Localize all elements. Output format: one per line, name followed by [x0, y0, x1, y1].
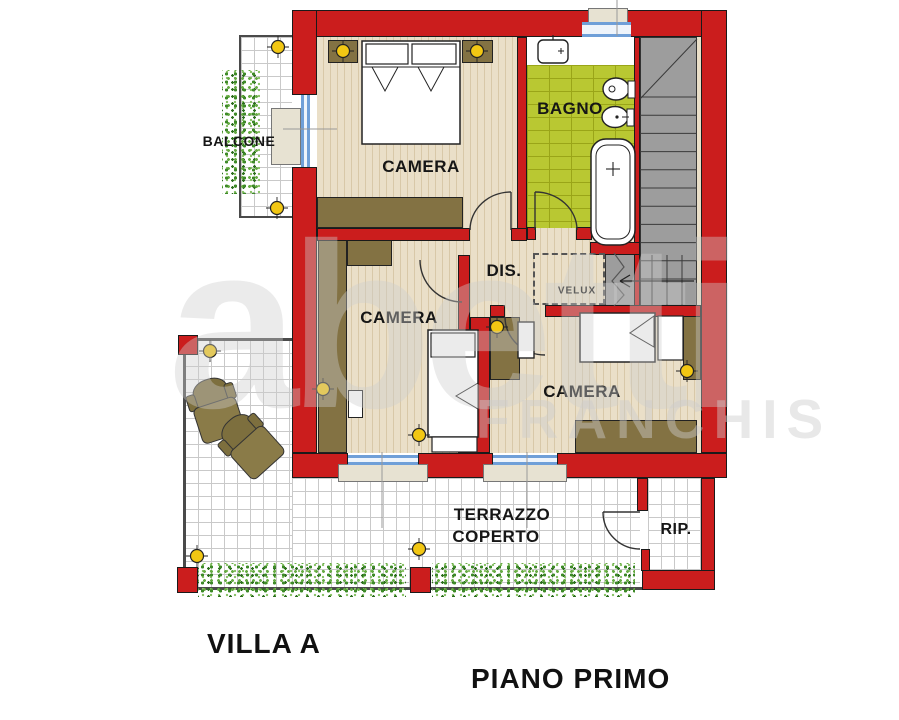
terrace-pillar-bottom-mid [410, 567, 431, 593]
wall-camera-bottom-left [470, 317, 490, 453]
label-dis: DIS. [486, 261, 521, 281]
wall-camera-top-stub [511, 228, 527, 241]
wardrobe-camera-top [317, 197, 463, 228]
terrace-border-top [183, 338, 292, 341]
wall-left-lower [292, 167, 317, 453]
wardrobe-camera-middle-vertical [318, 240, 347, 453]
wall-camera-bottom-top-b [545, 305, 701, 317]
bathroom-window-box [588, 8, 628, 23]
terrace-plants-right [432, 563, 635, 597]
wall-camera-top-bottom [317, 228, 470, 241]
balcony-door-glass [301, 95, 310, 167]
nightstand-right [462, 40, 493, 63]
label-bagno: BAGNO [537, 99, 603, 119]
balcony-plant [222, 70, 260, 194]
wall-right [701, 10, 727, 453]
wall-bagno-bottom-left [527, 227, 536, 240]
window-sill-camera-middle [338, 464, 428, 482]
terrace-border-left [183, 338, 186, 590]
label-velux: VELUX [558, 286, 596, 297]
balcony-door-threshold [271, 108, 301, 165]
wall-bottom-b [418, 453, 493, 478]
wardrobe-camera-bottom-left [490, 317, 520, 380]
label-terrazzo-line1: TERRAZZO [454, 505, 551, 525]
shelf-camera-middle [348, 390, 363, 418]
wall-left-upper [292, 10, 317, 95]
window-camera-bottom [493, 455, 557, 465]
terrace-pillar-bottom-left [177, 567, 198, 593]
terrace-plants-left [198, 563, 406, 597]
staircase [640, 37, 697, 306]
wall-rip-left-stub [641, 549, 650, 571]
wardrobe-camera-middle-top [347, 240, 392, 266]
nightstand-left [328, 40, 358, 63]
label-camera-top: CAMERA [382, 157, 460, 177]
window-camera-middle [348, 455, 418, 465]
bathroom-floor [527, 65, 634, 228]
label-camera-bottom: CAMERA [543, 382, 621, 402]
wall-top [292, 10, 727, 37]
wall-bagno-bottom-mid [576, 227, 592, 240]
bathroom-window [582, 22, 631, 37]
label-rip: RIP. [660, 521, 691, 539]
label-terrazzo-line2: COPERTO [452, 527, 539, 547]
wall-rip-bottom [642, 570, 715, 590]
wardrobe-camera-bottom [575, 420, 697, 453]
terrace-pillar-top-left [178, 335, 198, 355]
wall-camera-bagno [517, 37, 527, 241]
title-villa: VILLA A [207, 628, 321, 660]
velux-skylight [533, 253, 605, 305]
bathroom-sink-zone [527, 37, 634, 65]
wall-camera-middle-right [458, 255, 470, 453]
floorplan-canvas: BALCONE CAMERA BAGNO DIS. VELUX CAMERA C… [0, 0, 899, 720]
wall-bagno-stairs [634, 37, 640, 307]
wall-bottom-c [557, 453, 727, 478]
label-camera-middle: CAMERA [360, 308, 438, 328]
wall-camera-bottom-top-a [490, 305, 505, 317]
wardrobe-camera-bottom-right [683, 312, 701, 380]
window-sill-camera-bottom [483, 464, 567, 482]
title-piano: PIANO PRIMO [471, 663, 670, 695]
label-balcone: BALCONE [203, 133, 276, 149]
wall-rip-left-upper [637, 478, 648, 511]
